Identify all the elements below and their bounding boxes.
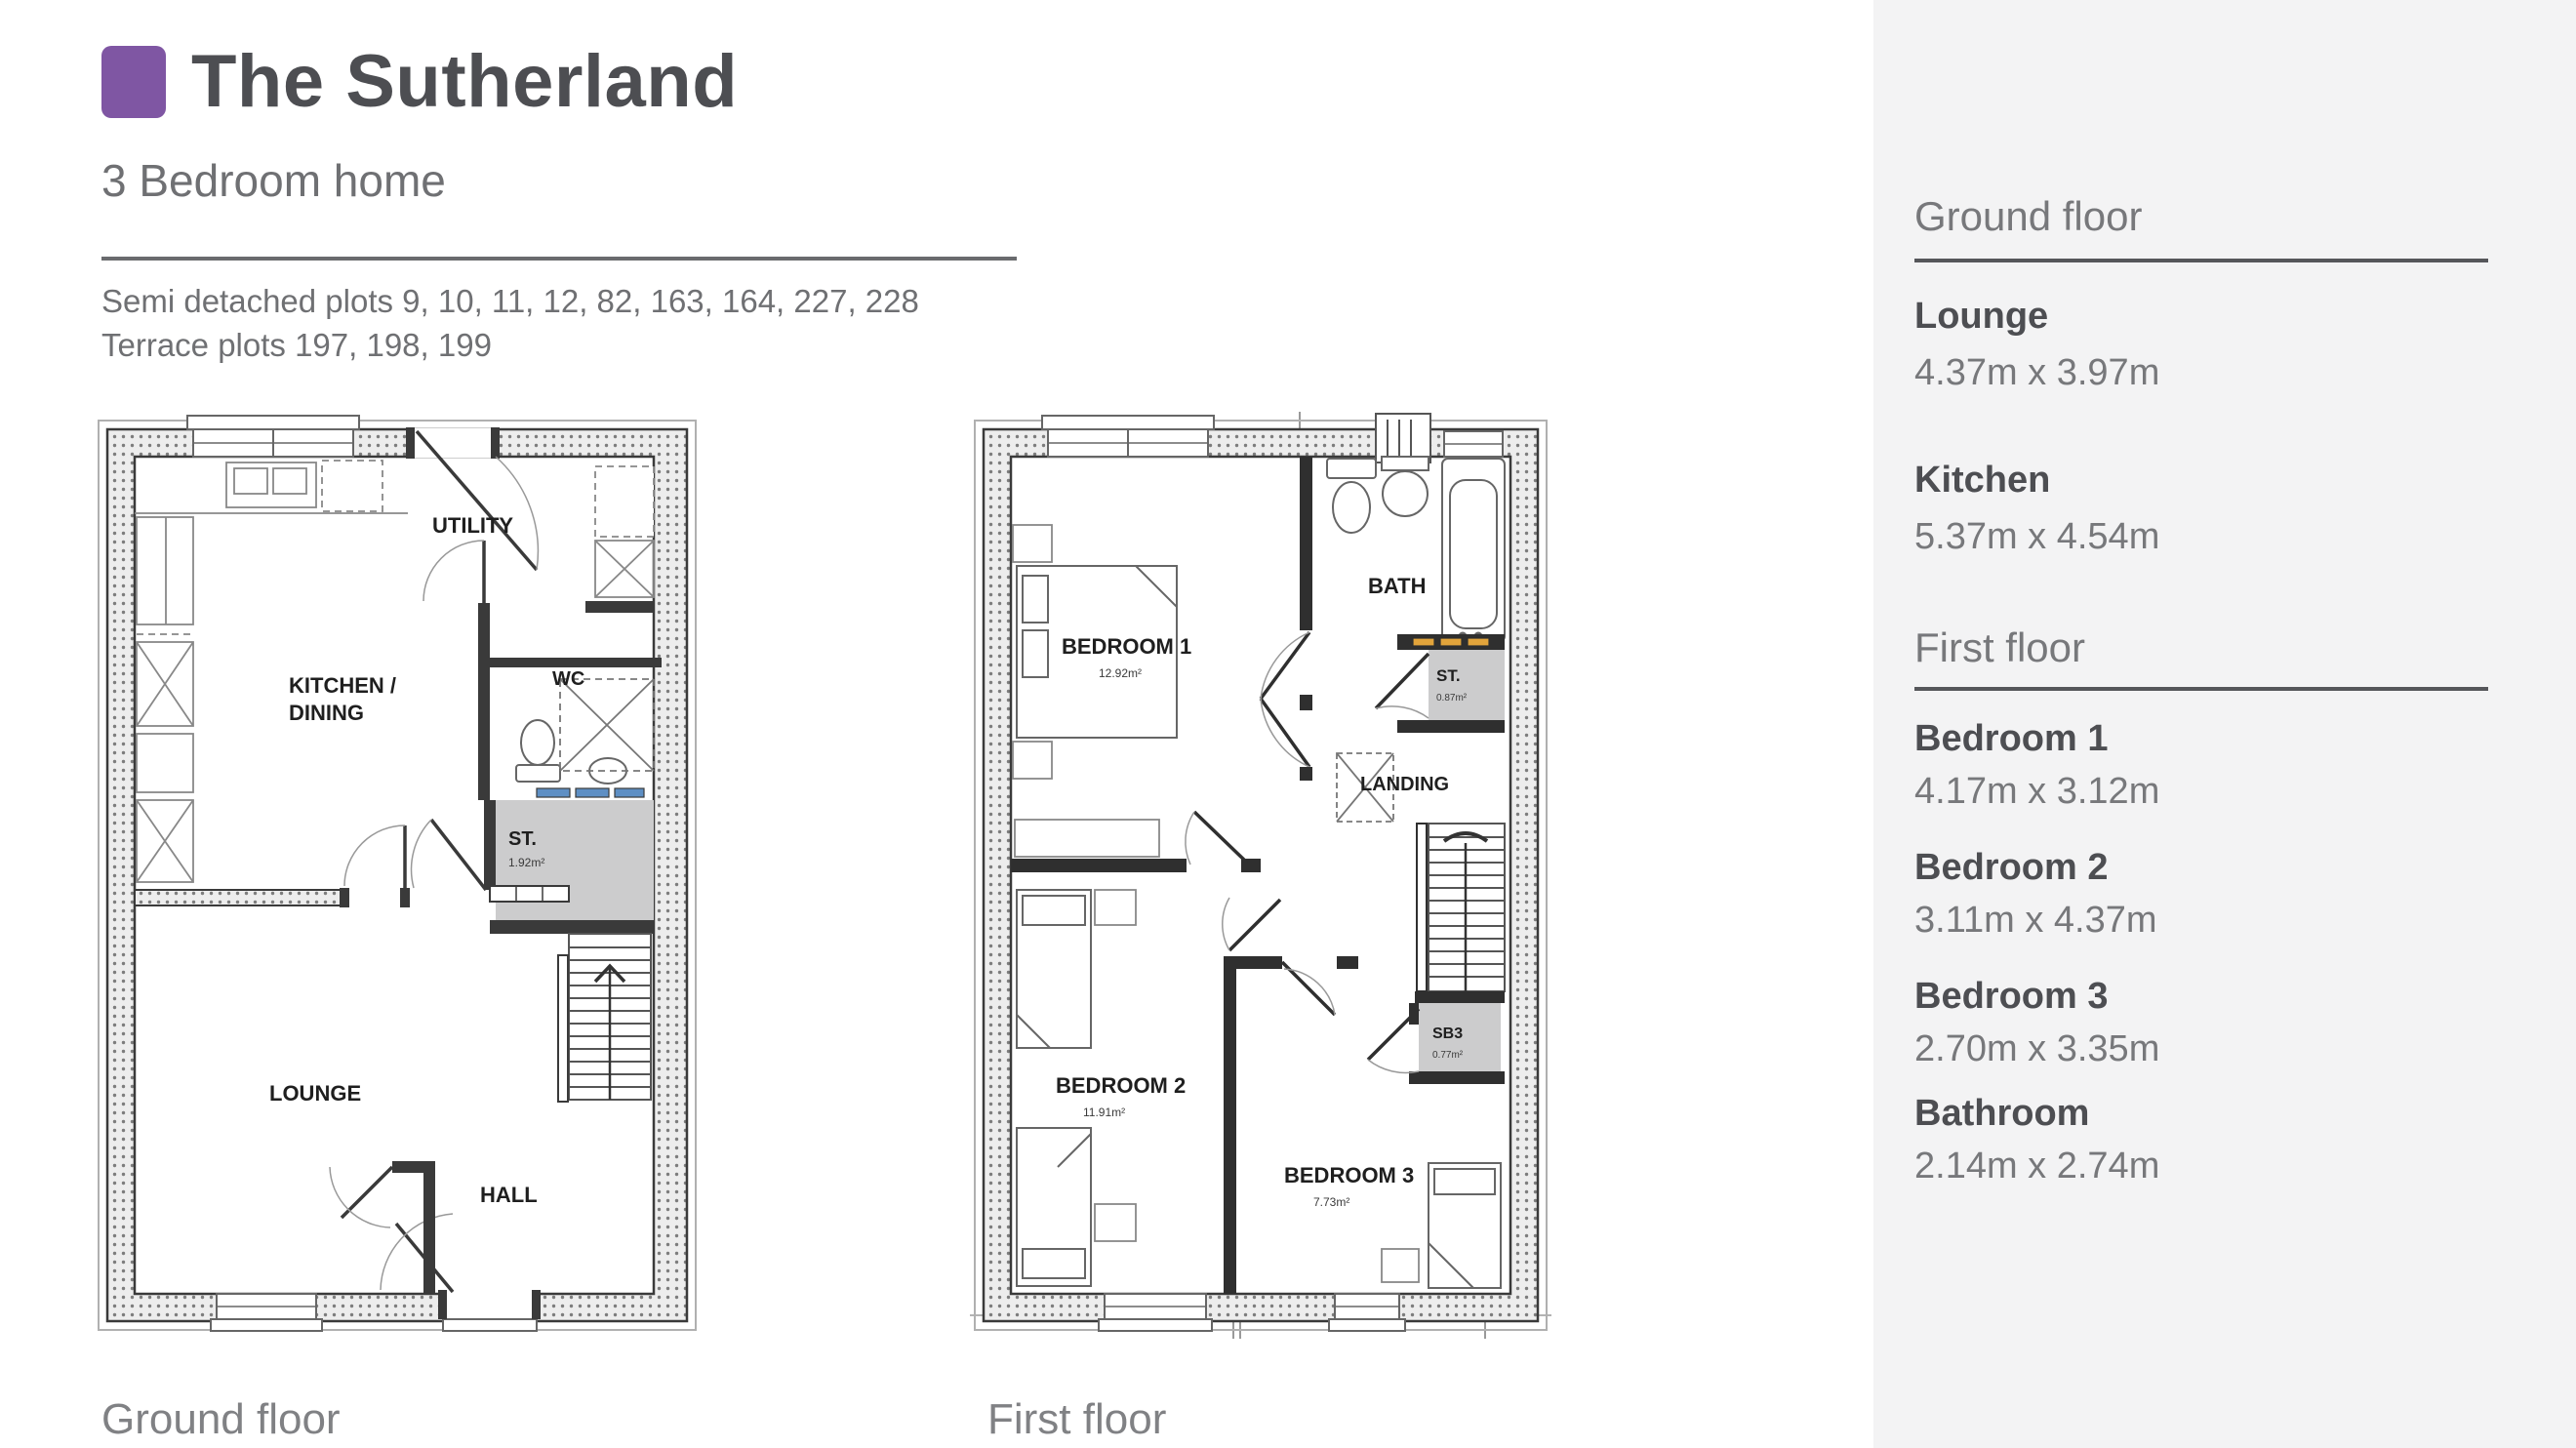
sb3-store <box>1368 1003 1505 1084</box>
bath-room <box>1327 457 1505 642</box>
kitchen-window <box>187 416 359 457</box>
sidebar-divider-ground <box>1914 259 2488 262</box>
room-name-bedroom2: Bedroom 2 <box>1914 847 2108 889</box>
floorplan-sheet: The Sutherland 3 Bedroom home Semi detac… <box>0 0 2576 1448</box>
first-store-label: ST. <box>1436 666 1461 685</box>
utility-cabinets <box>585 466 654 613</box>
basin-icon <box>589 758 626 784</box>
stairs <box>558 934 651 1102</box>
sidebar-section-first-heading: First floor <box>1914 624 2085 671</box>
lounge-label: LOUNGE <box>269 1081 361 1106</box>
dimensions-sidebar: Ground floor Lounge 4.37m x 3.97m Kitche… <box>1873 0 2576 1448</box>
yellow-markers <box>1413 638 1489 646</box>
bath-window <box>1444 431 1503 457</box>
bedroom2-label: BEDROOM 2 <box>1056 1073 1186 1098</box>
page-subtitle: 3 Bedroom home <box>101 154 446 207</box>
room-dims-kitchen: 5.37m x 4.54m <box>1914 516 2159 558</box>
lounge-window <box>211 1294 322 1331</box>
plot-list-line2: Terrace plots 197, 198, 199 <box>101 323 919 367</box>
utility-label: UTILITY <box>432 513 513 538</box>
room-name-kitchen: Kitchen <box>1914 460 2050 502</box>
room-dims-bedroom2: 3.11m x 4.37m <box>1914 900 2157 942</box>
basin-icon <box>1383 471 1428 516</box>
room-dims-bedroom3: 2.70m x 3.35m <box>1914 1028 2159 1070</box>
kitchen-lounge-wall <box>135 825 410 907</box>
bath-label: BATH <box>1368 574 1426 598</box>
room-name-bedroom1: Bedroom 1 <box>1914 718 2108 760</box>
ground-floor-caption: Ground floor <box>101 1395 341 1444</box>
first-floor-plan: BEDROOM 1 12.92m² BATH ST. 0.87m² LANDIN… <box>966 412 1555 1339</box>
page-title: The Sutherland <box>191 39 738 124</box>
blue-markers <box>537 788 644 797</box>
bedroom-dividers <box>1223 898 1358 1294</box>
bathtub-icon <box>1442 459 1505 642</box>
toilet-icon <box>1333 482 1370 533</box>
sidebar-divider-first <box>1914 687 2488 691</box>
plot-list: Semi detached plots 9, 10, 11, 12, 82, 1… <box>101 279 919 367</box>
sb3-label: SB3 <box>1432 1026 1463 1042</box>
brand: The Sutherland <box>101 39 738 124</box>
ground-store-area: 1.92m² <box>508 856 544 869</box>
first-store-area: 0.87m² <box>1436 693 1468 704</box>
utility-inner-door <box>423 541 490 664</box>
room-dims-bedroom1: 4.17m x 3.12m <box>1914 771 2159 813</box>
hall-label: HALL <box>480 1183 538 1207</box>
sb3-area: 0.77m² <box>1432 1050 1464 1061</box>
room-dims-lounge: 4.37m x 3.97m <box>1914 352 2159 394</box>
room-name-lounge: Lounge <box>1914 296 2048 338</box>
brand-accent-square <box>101 46 166 118</box>
room-name-bedroom3: Bedroom 3 <box>1914 976 2108 1018</box>
bedroom1-area: 12.92m² <box>1099 666 1142 680</box>
wc-hatch-box <box>560 679 654 771</box>
landing-label: LANDING <box>1360 774 1449 795</box>
ground-store-label: ST. <box>508 828 537 850</box>
wc-label: WC <box>552 668 584 690</box>
bedroom2-area: 11.91m² <box>1083 1106 1125 1119</box>
toilet-icon <box>521 720 554 765</box>
ground-floor-plan: UTILITY KITCHEN / DINING WC ST. 1.92m² L… <box>90 412 704 1339</box>
bedroom2-window <box>1099 1294 1212 1331</box>
kitchen-label-line2: DINING <box>289 701 364 725</box>
sidebar-section-ground-heading: Ground floor <box>1914 193 2142 240</box>
header-divider <box>101 257 1017 261</box>
room-dims-bathroom: 2.14m x 2.74m <box>1914 1146 2159 1187</box>
bedroom1-label: BEDROOM 1 <box>1062 634 1191 659</box>
bedroom1-window <box>1042 416 1214 457</box>
bedroom1-furniture <box>1013 525 1177 857</box>
kitchen-counters <box>135 461 408 882</box>
bedroom3-area: 7.73m² <box>1313 1195 1349 1209</box>
bedroom1-bath-wall <box>1261 457 1312 781</box>
first-floor-caption: First floor <box>987 1395 1166 1444</box>
plot-list-line1: Semi detached plots 9, 10, 11, 12, 82, 1… <box>101 279 919 323</box>
bedroom3-window <box>1329 1294 1405 1331</box>
stairs <box>1415 824 1505 1003</box>
bedroom3-label: BEDROOM 3 <box>1284 1163 1414 1187</box>
flue-vent <box>1376 414 1430 463</box>
room-name-bathroom: Bathroom <box>1914 1093 2089 1135</box>
kitchen-label-line1: KITCHEN / <box>289 673 396 698</box>
